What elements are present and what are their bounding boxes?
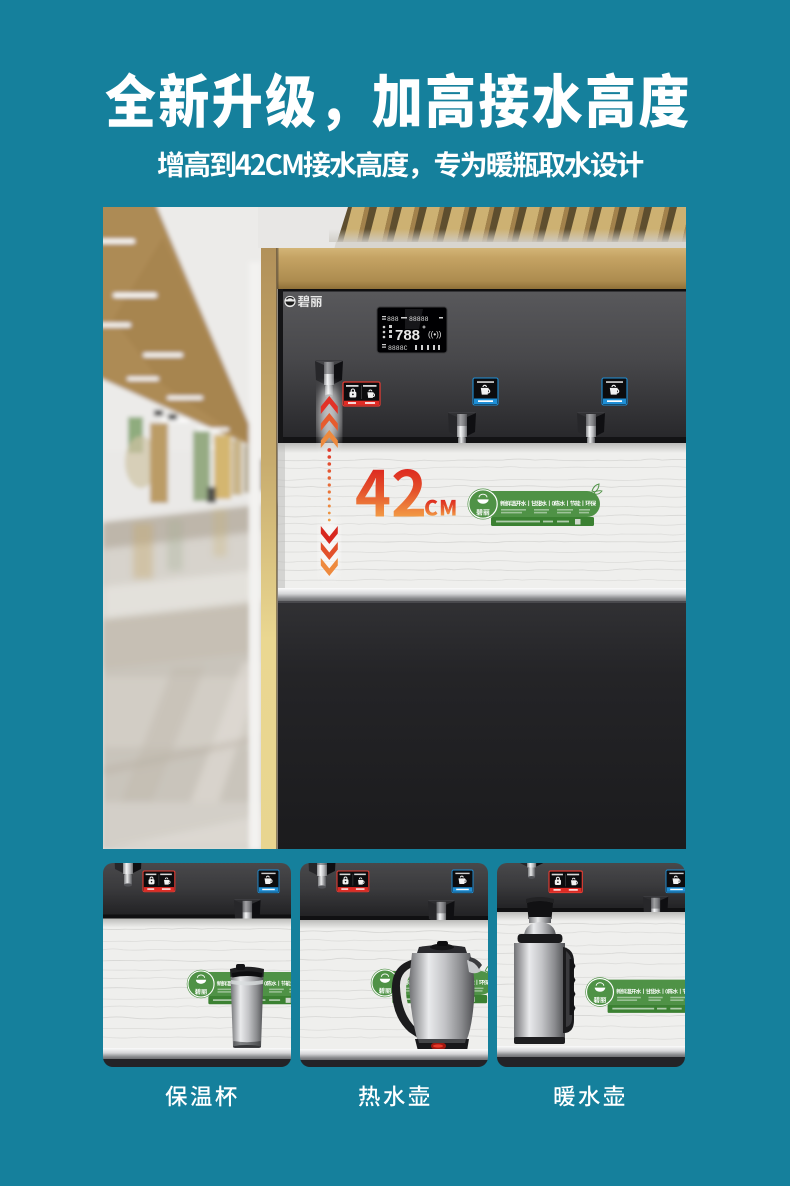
svg-text:788: 788: [395, 327, 420, 344]
svg-text:888: 888: [387, 316, 399, 323]
svg-text:8888C: 8888C: [388, 345, 408, 352]
svg-text:((•)): ((•)): [428, 330, 442, 339]
svg-text:88888: 88888: [409, 316, 429, 323]
